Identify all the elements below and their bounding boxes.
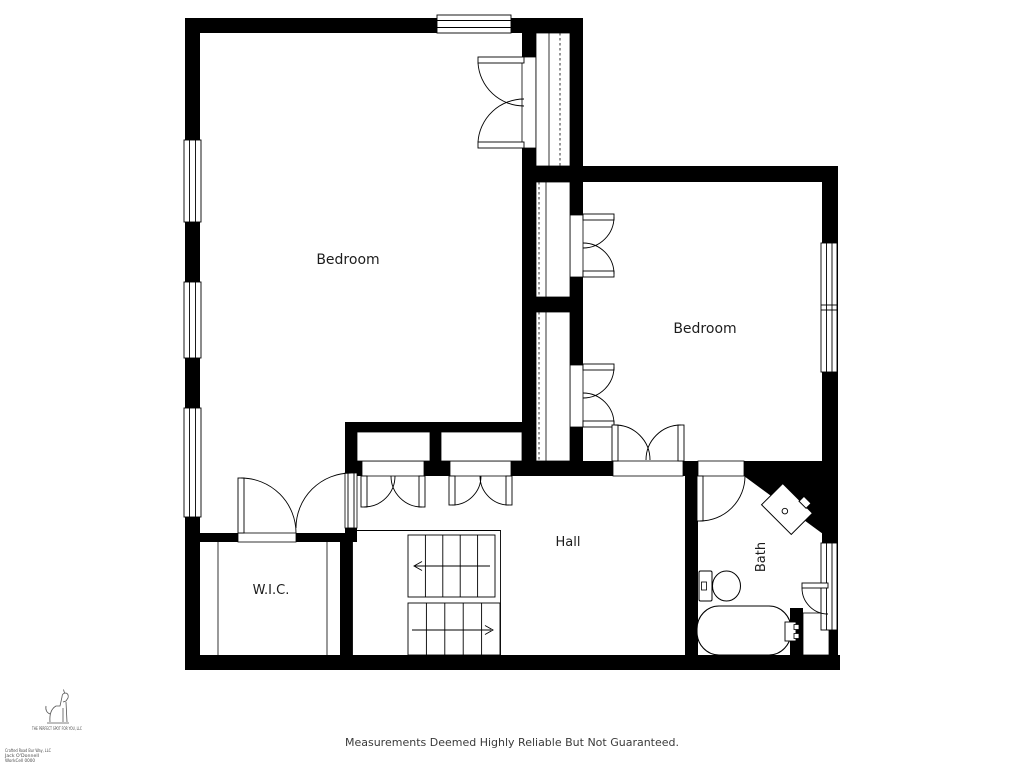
stairs-upper-flight xyxy=(408,535,495,597)
label-bedroom-left: Bedroom xyxy=(316,252,379,268)
label-bath: Bath xyxy=(754,542,769,572)
label-wic: W.I.C. xyxy=(253,583,290,598)
toilet xyxy=(699,571,741,601)
wall-bottom xyxy=(185,655,840,670)
wall-wic-right xyxy=(340,533,352,655)
floor-plan-drawing: Bedroom Bedroom Hall W.I.C. Bath THE PER… xyxy=(0,0,1024,768)
closet-bedroom-right-2 xyxy=(536,312,570,461)
wall-top xyxy=(185,18,582,33)
fine-print-line-3: WorkCell 0000 xyxy=(5,758,35,763)
door-openings xyxy=(238,57,744,542)
window-left-2 xyxy=(184,282,201,358)
closet-hall-1 xyxy=(357,432,430,461)
window-bedroom-right xyxy=(821,243,837,372)
floor-plan-page: Bedroom Bedroom Hall W.I.C. Bath THE PER… xyxy=(0,0,1024,768)
door-french-bedroom-left-closet xyxy=(478,57,524,148)
disclaimer-text: Measurements Deemed Highly Reliable But … xyxy=(345,736,679,749)
dog-logo-icon xyxy=(46,690,69,724)
label-hall: Hall xyxy=(556,535,581,550)
stairs-lower-flight xyxy=(408,603,500,655)
branding-block: THE PERFECT SPOT FOR YOU, LLC Crafted Ro… xyxy=(4,690,82,764)
bathtub xyxy=(697,606,799,655)
window-left-3 xyxy=(184,408,201,517)
closet-hall-2 xyxy=(441,432,522,461)
door-double-bedroom-right-closet-2 xyxy=(583,364,614,427)
window-left-1 xyxy=(184,140,201,222)
wall-bath-left xyxy=(685,476,698,655)
company-name: THE PERFECT SPOT FOR YOU, LLC xyxy=(31,726,82,731)
wall-bedroom-right-top xyxy=(536,166,838,182)
closet-bedroom-right-1 xyxy=(536,182,570,297)
window-top xyxy=(437,15,511,33)
door-bifold-hall-closet-1 xyxy=(361,476,425,507)
wall-hall-closet-top xyxy=(345,422,535,432)
door-double-bedroom-right-entry xyxy=(612,425,684,461)
door-bath-entry xyxy=(697,476,745,521)
label-bedroom-right: Bedroom xyxy=(673,321,736,337)
stairs xyxy=(353,531,501,656)
walls xyxy=(185,18,840,670)
closet-rod-lines xyxy=(218,33,560,655)
door-bifold-hall-closet-2 xyxy=(449,476,512,505)
closet-bedroom-left xyxy=(536,33,570,166)
door-double-bedroom-right-closet-1 xyxy=(583,214,614,277)
door-wic xyxy=(238,478,296,533)
